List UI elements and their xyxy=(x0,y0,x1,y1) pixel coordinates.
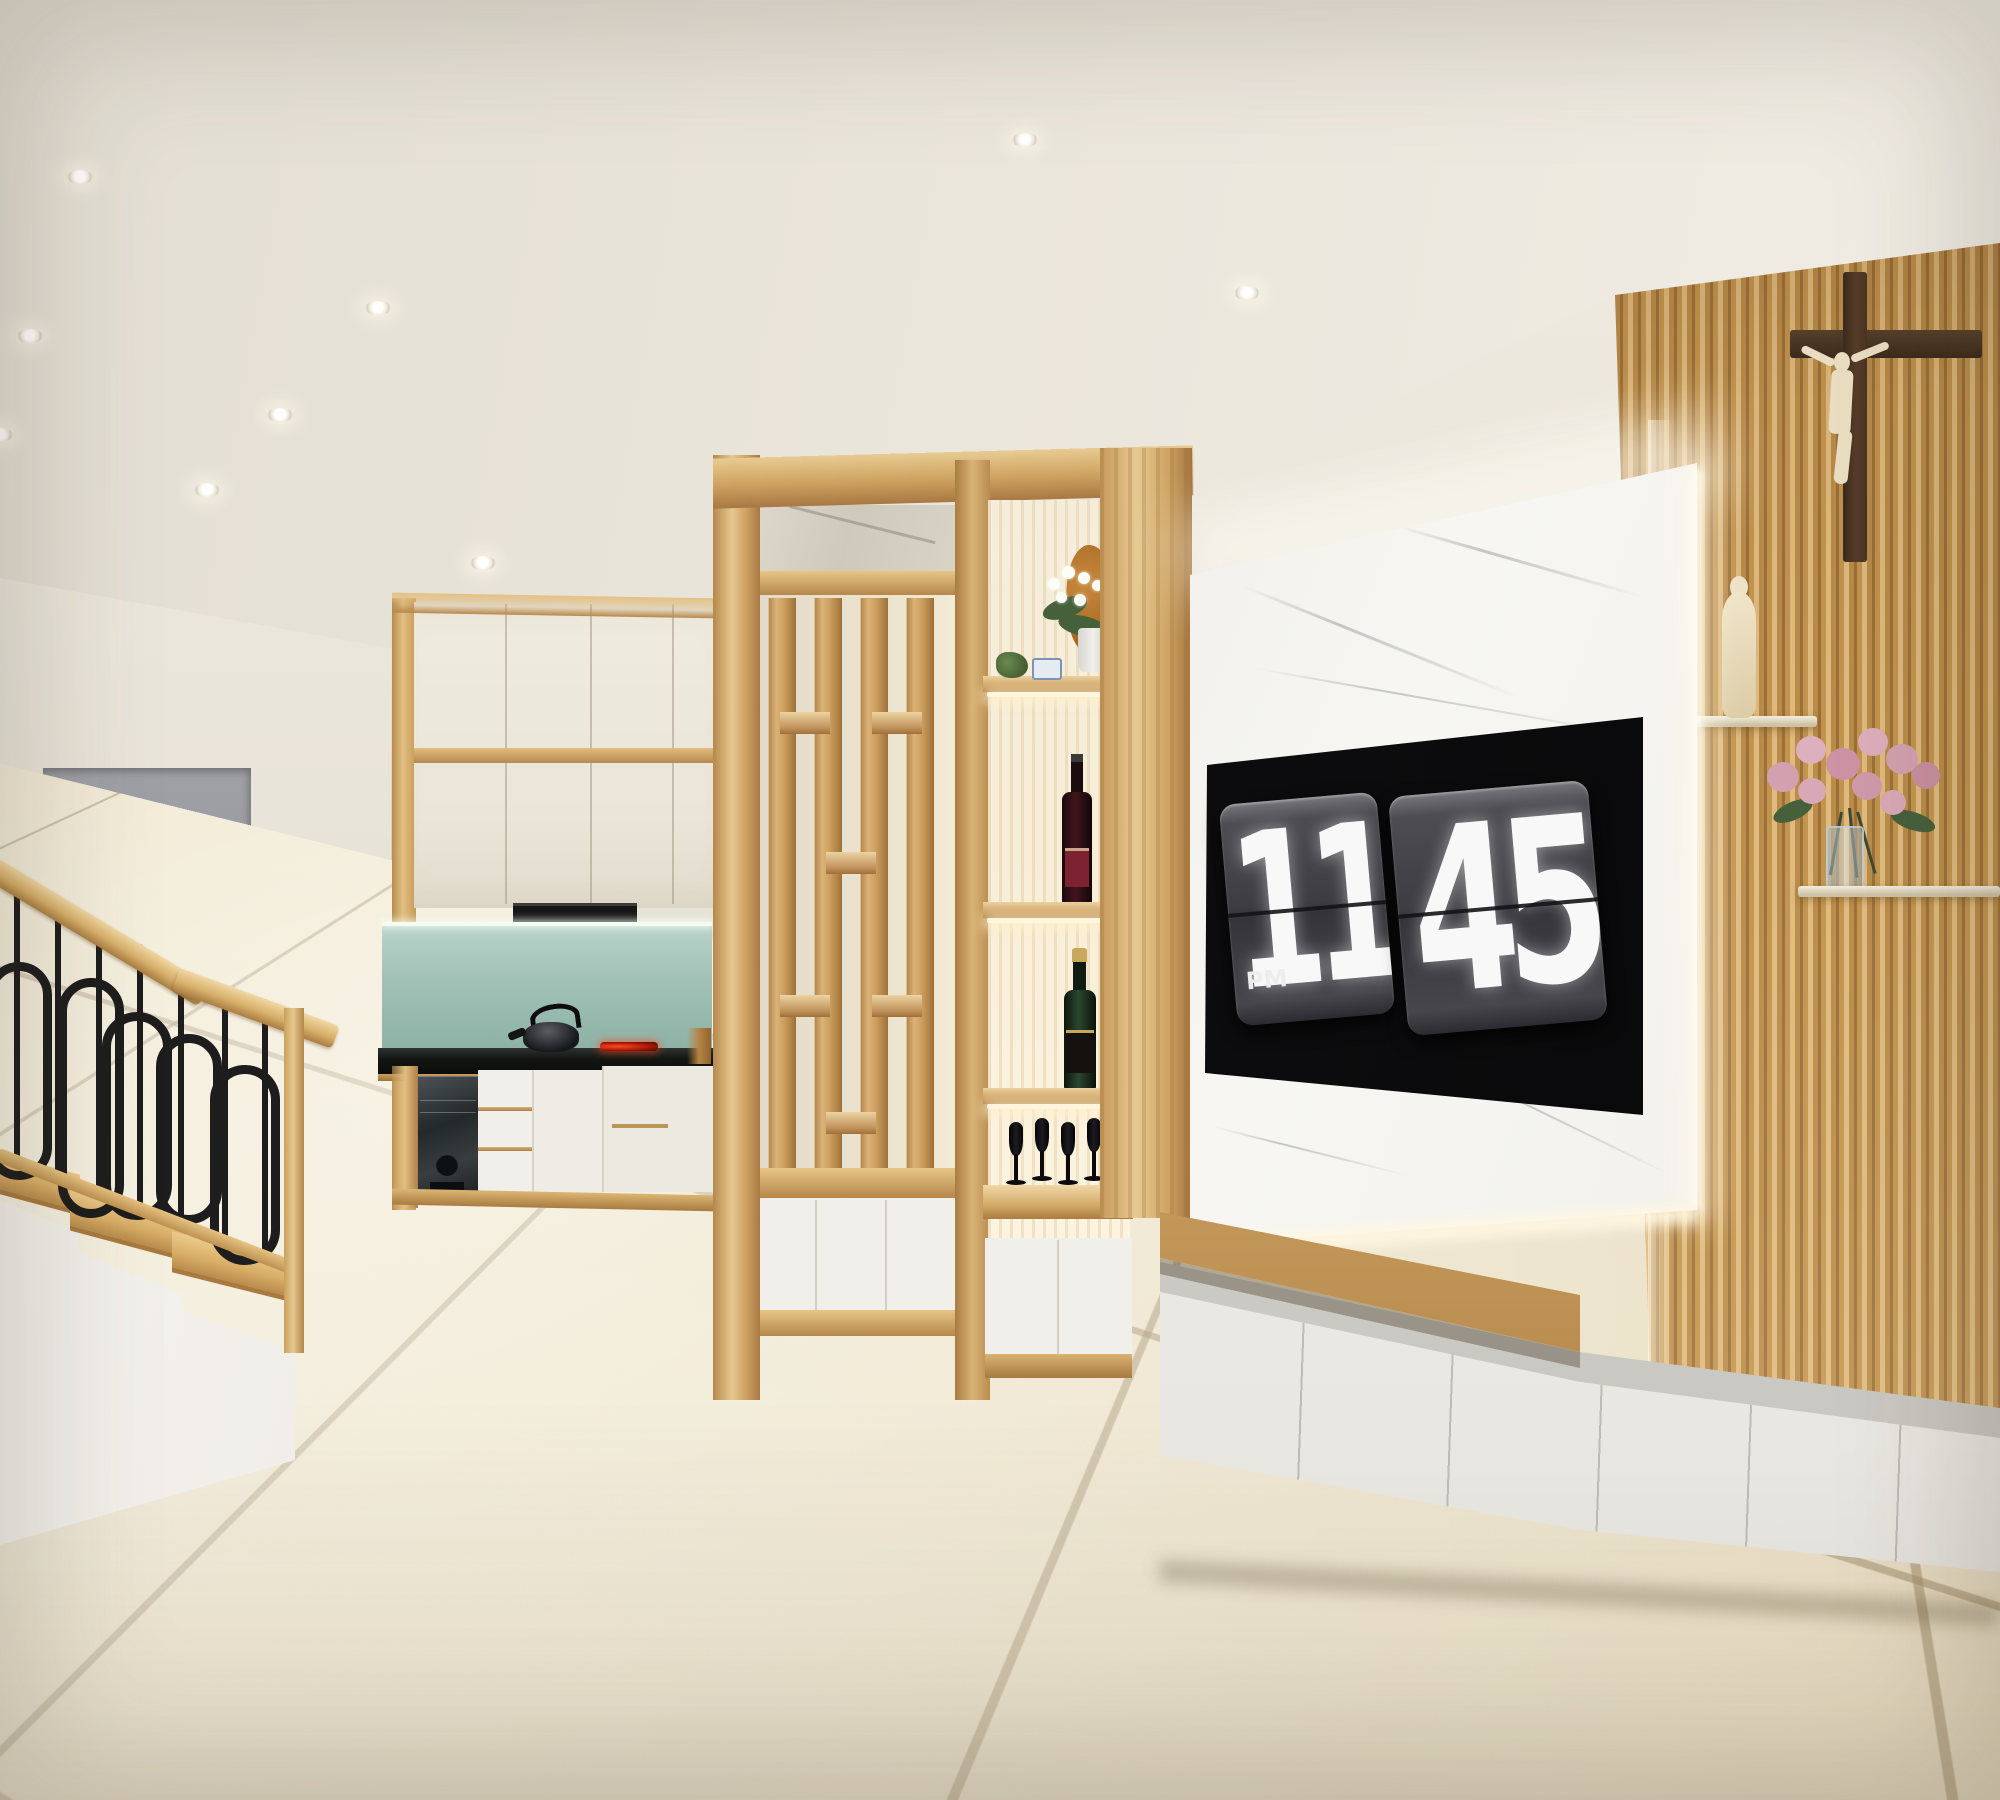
minute-digits: 45 xyxy=(1393,786,1602,1030)
marble-vein xyxy=(1213,1126,1408,1176)
ivory-statuette xyxy=(1722,592,1756,718)
recessed-spotlight xyxy=(67,170,93,184)
wine-bottle-neck xyxy=(1071,760,1083,796)
wine-glass xyxy=(1034,1118,1050,1184)
orchid-flower xyxy=(1056,592,1067,603)
champagne-neck xyxy=(1073,958,1086,994)
recessed-spotlight xyxy=(17,329,43,343)
recessed-spotlight xyxy=(1012,133,1038,147)
base-doors xyxy=(602,1066,716,1192)
hour-digits: 11 xyxy=(1219,795,1396,1022)
wine-bottle-cap xyxy=(1071,754,1083,762)
rose xyxy=(1796,736,1826,764)
recessed-spotlight xyxy=(365,301,391,315)
glass-vase xyxy=(1826,826,1864,892)
screen-bottom-rail xyxy=(746,1168,955,1198)
marble-vein xyxy=(1395,524,1646,599)
cabinet-detail-line xyxy=(420,1112,476,1113)
rose xyxy=(1826,748,1860,780)
porcelain-box xyxy=(1032,658,1062,680)
screen-slat xyxy=(860,598,888,1170)
meridiem-label: PM xyxy=(1245,964,1289,996)
newel-post xyxy=(284,1008,304,1353)
orchid-flower xyxy=(1048,578,1060,590)
cabinet-knob xyxy=(436,1154,458,1176)
interior-3d-render: 11 PM 45 xyxy=(0,0,2000,1800)
orchid-flower xyxy=(1062,566,1075,579)
cabinet-seam xyxy=(1057,1240,1059,1356)
screen-rung xyxy=(872,712,922,734)
unit-corner-pillar xyxy=(1100,448,1192,1218)
marble-vein xyxy=(1240,584,1519,699)
led-edge-glow xyxy=(1693,468,1702,1210)
rose xyxy=(1880,790,1906,815)
baluster-capsule xyxy=(0,962,52,1180)
screen-rung xyxy=(872,995,922,1017)
kettle xyxy=(523,1022,579,1052)
cabinet-detail-line xyxy=(420,1100,476,1101)
glass-shelf xyxy=(1798,886,2000,897)
partition-plinth xyxy=(746,1310,955,1336)
screen-rung xyxy=(780,995,830,1017)
screen-rung xyxy=(826,1112,876,1134)
rose xyxy=(1798,778,1826,804)
marble-vein xyxy=(1253,667,1628,735)
flip-clock-minute-card: 45 xyxy=(1388,780,1608,1037)
partition-base-cabinet xyxy=(746,1198,955,1314)
recessed-spotlight xyxy=(267,408,293,422)
induction-hob-glow xyxy=(600,1042,658,1051)
recessed-spotlight xyxy=(1234,286,1260,300)
screen-rung xyxy=(780,712,830,734)
rose xyxy=(1912,762,1940,789)
recessed-spotlight xyxy=(0,428,13,442)
rose xyxy=(1858,728,1888,756)
crucifix-figure-body xyxy=(1828,369,1853,434)
flip-clock-hour-card: 11 PM xyxy=(1219,792,1396,1027)
screen-slat xyxy=(768,598,796,1170)
screen-slat xyxy=(814,598,842,1170)
screen-rail xyxy=(760,571,955,595)
screen-rung xyxy=(826,852,876,874)
champagne-label xyxy=(1066,1030,1094,1073)
cabinet-seam xyxy=(815,1200,817,1312)
recessed-spotlight xyxy=(470,556,496,570)
rose xyxy=(1767,762,1799,792)
orchid-flower xyxy=(1078,572,1090,584)
orchid-flower xyxy=(1074,594,1086,606)
corner-door xyxy=(532,1070,604,1198)
wine-glass xyxy=(1060,1122,1076,1188)
under-cabinet-light xyxy=(382,922,712,926)
wine-label xyxy=(1065,848,1089,887)
drawer-stack xyxy=(478,1070,532,1198)
screen-slat xyxy=(906,598,934,1170)
succulent-plant xyxy=(996,652,1028,678)
glass-shelf xyxy=(1687,716,1817,727)
cutting-board xyxy=(687,1028,711,1064)
wine-glass xyxy=(1008,1122,1024,1188)
door-handle xyxy=(612,1124,668,1128)
base-side-panel xyxy=(392,1066,418,1208)
drawer-edge xyxy=(478,1107,532,1111)
cabinet-seam xyxy=(885,1200,887,1312)
display-plinth xyxy=(985,1354,1132,1378)
recessed-spotlight xyxy=(194,483,220,497)
champagne-foil xyxy=(1072,948,1087,962)
drawer-edge xyxy=(478,1147,532,1151)
dark-glass-cabinet xyxy=(418,1076,478,1198)
partition-post xyxy=(713,455,760,1400)
rose xyxy=(1852,772,1882,800)
